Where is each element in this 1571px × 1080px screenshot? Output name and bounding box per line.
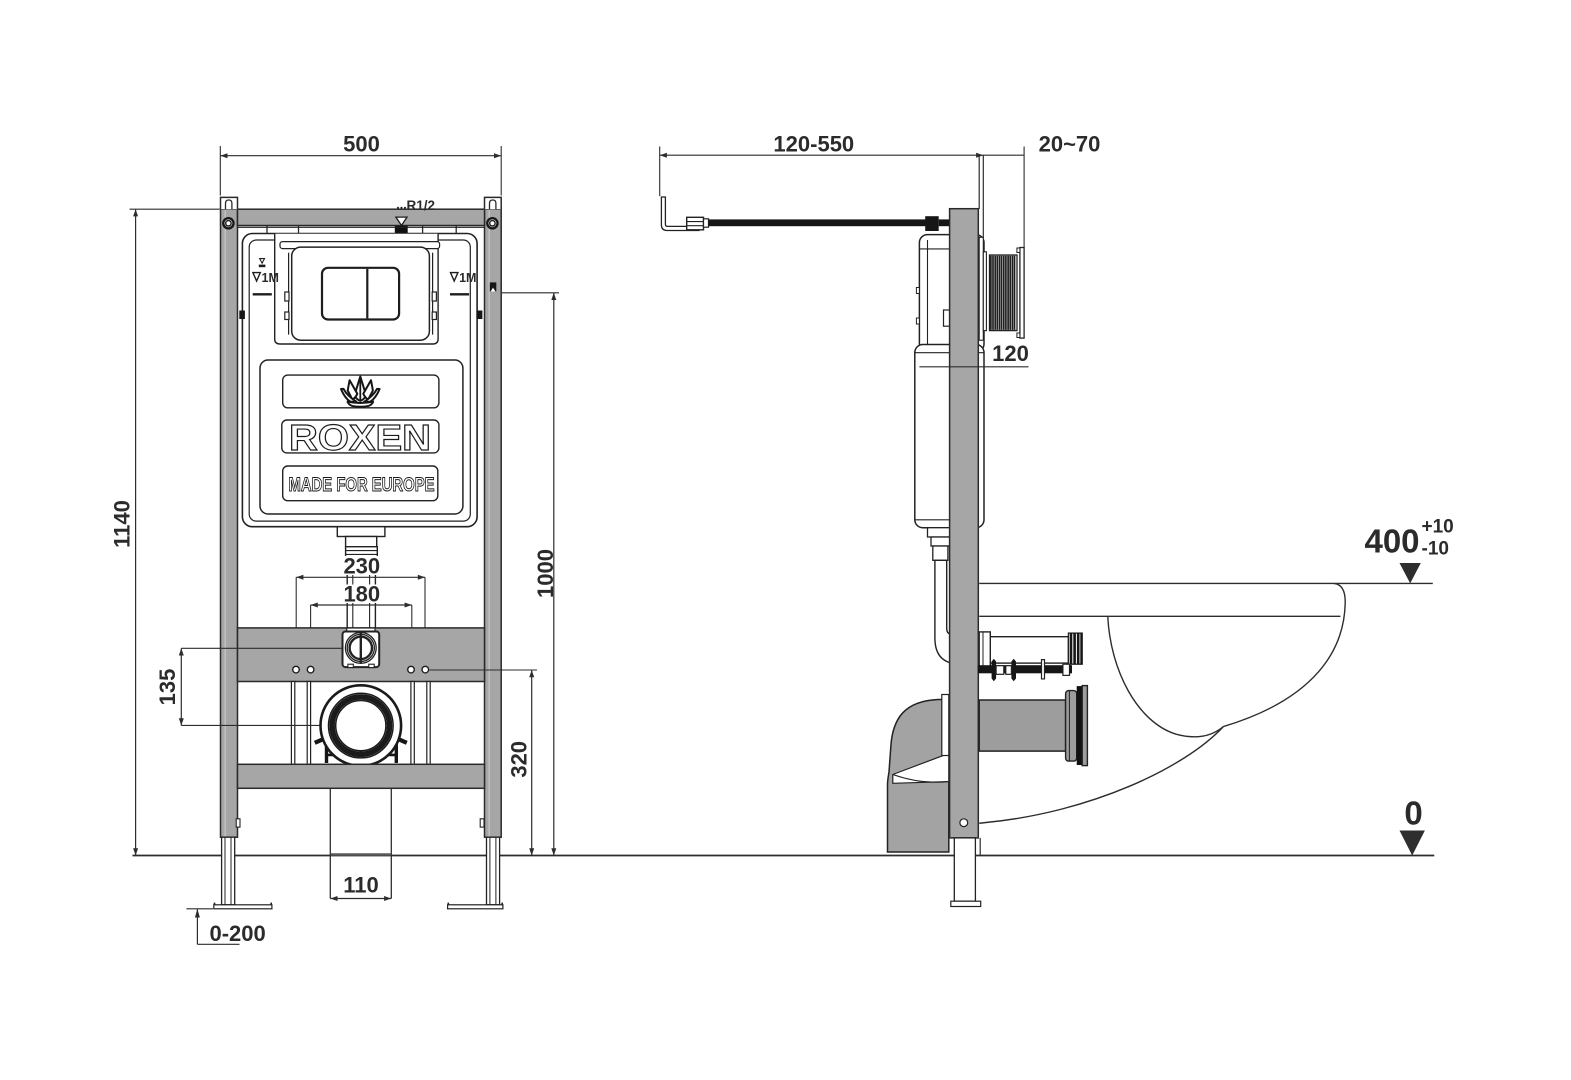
- svg-text:120-550: 120-550: [773, 132, 854, 157]
- svg-text:180: 180: [343, 582, 380, 607]
- svg-text:+10: +10: [1422, 517, 1454, 538]
- svg-text:0: 0: [1404, 795, 1422, 832]
- svg-text:1140: 1140: [110, 500, 135, 548]
- svg-text:R1/2: R1/2: [407, 198, 436, 213]
- svg-text:20~70: 20~70: [1039, 132, 1101, 157]
- svg-text:ROXEN: ROXEN: [289, 417, 431, 458]
- svg-text:400: 400: [1364, 523, 1419, 560]
- svg-text:MADE FOR EUROPE: MADE FOR EUROPE: [289, 474, 435, 496]
- svg-text:110: 110: [343, 873, 379, 898]
- svg-text:0-200: 0-200: [210, 921, 266, 946]
- svg-text:230: 230: [343, 554, 380, 579]
- svg-text:500: 500: [343, 132, 380, 157]
- svg-text:320: 320: [507, 741, 532, 778]
- svg-text:1M: 1M: [459, 271, 476, 285]
- svg-text:135: 135: [155, 669, 180, 706]
- svg-text:1M: 1M: [262, 271, 279, 285]
- svg-text:120: 120: [992, 341, 1029, 366]
- svg-text:-10: -10: [1422, 539, 1449, 560]
